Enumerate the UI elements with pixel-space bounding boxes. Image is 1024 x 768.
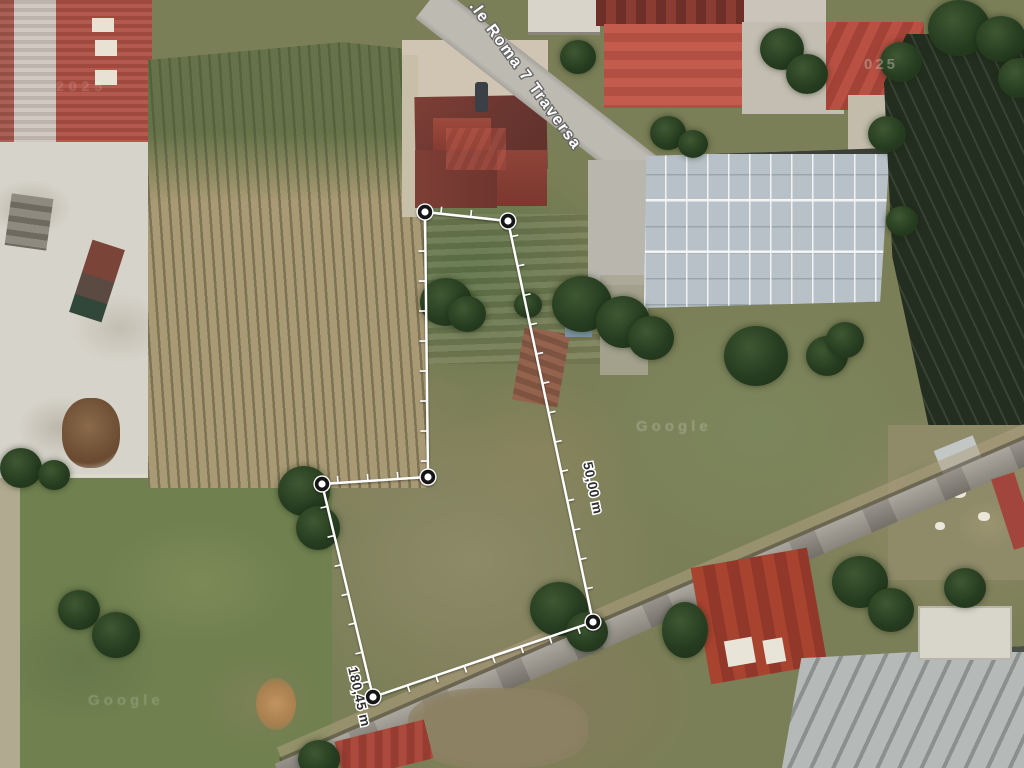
- tree: [662, 602, 708, 658]
- roof-corrugation: [0, 0, 152, 142]
- tree: [92, 612, 140, 658]
- tree: [296, 506, 340, 550]
- tree: [976, 16, 1024, 62]
- vineyard-field: [148, 42, 426, 488]
- greenhouse: [644, 148, 890, 308]
- vineyard-green-rows: [148, 42, 426, 202]
- concrete-pads: [918, 606, 1012, 660]
- tr-white-roof: [744, 0, 826, 22]
- dirt-patch-bottom: [408, 688, 588, 768]
- tree: [868, 588, 914, 632]
- barn-white-patch: [724, 637, 756, 667]
- field-dirt-strip: [0, 462, 20, 768]
- tick-mark: [348, 623, 355, 625]
- tick-mark: [342, 594, 349, 596]
- white-building-top: [528, 0, 600, 35]
- outbuilding-white: [446, 128, 506, 170]
- tree: [38, 460, 70, 490]
- yard-containers: [5, 193, 54, 250]
- tr-salmon-roof: [604, 24, 744, 108]
- tick-mark: [335, 565, 342, 567]
- skylight: [95, 70, 117, 85]
- tick-mark: [574, 529, 581, 530]
- tree: [724, 326, 788, 386]
- warehouse-roof: [0, 0, 152, 142]
- tree: [514, 292, 542, 318]
- tr-dark-roof-strip: [596, 0, 746, 26]
- tree: [560, 40, 596, 74]
- tree: [826, 322, 864, 358]
- tree: [448, 296, 486, 332]
- watermark-google-center: Google: [636, 418, 712, 435]
- tree: [0, 448, 42, 488]
- tick-mark: [586, 587, 593, 588]
- dark-netted-field: [884, 34, 1024, 440]
- tree: [944, 568, 986, 608]
- tick-mark: [580, 558, 587, 559]
- bottom-greenhouse: [782, 646, 1024, 768]
- rock: [935, 522, 945, 530]
- parked-van: [475, 82, 488, 112]
- tree: [566, 612, 608, 652]
- tree: [678, 130, 708, 158]
- satellite-map: Google Google 025 2025 50,00 m180,45 m.l…: [0, 0, 1024, 768]
- barn-white-patch: [762, 637, 786, 664]
- rock: [978, 512, 990, 521]
- tree: [868, 116, 906, 152]
- tick-mark: [355, 652, 362, 654]
- tree: [880, 42, 922, 82]
- tree: [628, 316, 674, 360]
- tree: [886, 206, 918, 236]
- skylight: [92, 18, 114, 32]
- skylight: [95, 40, 117, 56]
- tree: [786, 54, 828, 94]
- yard-debris-pile: [62, 398, 120, 468]
- tick-mark: [362, 681, 369, 683]
- field-brown-spot: [256, 678, 296, 730]
